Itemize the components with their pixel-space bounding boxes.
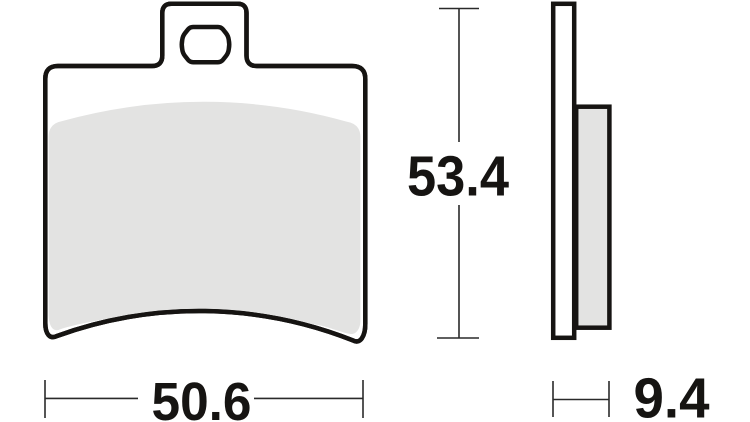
svg-text:50.6: 50.6 [152,373,252,422]
svg-text:53.4: 53.4 [407,145,510,208]
svg-text:9.4: 9.4 [634,367,711,422]
